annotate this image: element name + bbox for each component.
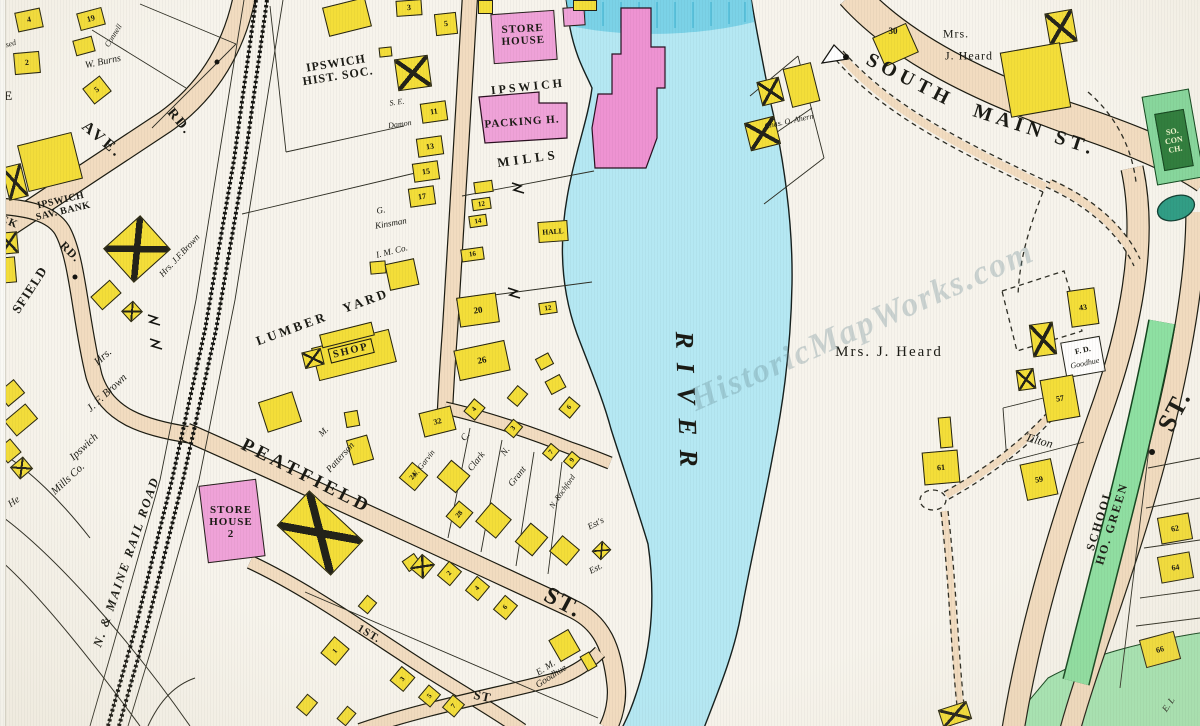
building-number: 43	[1078, 303, 1087, 312]
map-building: HALL	[537, 220, 568, 243]
building-number: 3	[407, 4, 412, 12]
building-number: 15	[421, 167, 430, 176]
map-building: 13	[416, 135, 444, 157]
building-number: 7	[547, 448, 555, 455]
map-building	[1060, 336, 1106, 378]
map-building: 64	[1157, 551, 1194, 583]
map-building	[1044, 9, 1077, 46]
building-number: HALL	[542, 227, 564, 236]
building-number: 62	[1170, 524, 1179, 533]
map-building	[379, 46, 393, 57]
map-building: 11	[420, 100, 449, 123]
map-building: 2	[13, 51, 41, 75]
building-number: 28	[455, 510, 465, 520]
building-number: 5	[444, 20, 449, 28]
map-building	[344, 410, 361, 428]
building-number: 17	[417, 192, 426, 201]
map-building: 62	[1157, 512, 1193, 544]
building-number: 2	[446, 570, 454, 577]
building-number: 5	[93, 86, 101, 95]
building-number: 12	[478, 200, 486, 208]
owner-label-heard: Mrs.	[943, 27, 969, 40]
building-number: 9	[568, 456, 576, 463]
building-number: 2	[25, 59, 30, 67]
building-number: 26	[477, 355, 488, 366]
map-building: 57	[1040, 374, 1081, 422]
building-number: 4	[471, 406, 479, 413]
building-number: 6	[502, 604, 510, 611]
building-number: 11	[430, 108, 439, 117]
building-number: 1	[331, 647, 339, 654]
building-number: 61	[937, 463, 946, 472]
map-building	[1016, 368, 1037, 391]
map-building: 61	[922, 449, 961, 485]
building-number: 20	[473, 305, 483, 315]
building-number: 64	[1171, 563, 1180, 572]
building-number: 4	[26, 16, 32, 25]
map-building: 15	[412, 160, 440, 182]
building-number: 19	[86, 14, 96, 24]
map-building	[478, 0, 493, 14]
historic-map-ipswich: 419253511131517121416HALL202612463793224…	[0, 0, 1200, 726]
map-building	[573, 0, 597, 11]
place-label-store-house-2: STORE HOUSE 2	[209, 504, 253, 540]
map-building	[369, 260, 386, 274]
building-number: 57	[1055, 394, 1064, 403]
map-building	[938, 416, 954, 448]
map-building: 20	[456, 292, 500, 327]
owner-label-heard: J. Heard	[945, 49, 993, 62]
building-number: 59	[1034, 475, 1043, 484]
building-number: 7	[450, 702, 458, 709]
building-number: 6	[566, 404, 574, 411]
map-building: 12	[538, 301, 557, 315]
scan-edge	[0, 0, 6, 726]
map-building	[1029, 321, 1057, 357]
building-number: 14	[474, 217, 482, 225]
map-building: 43	[1067, 287, 1100, 328]
building-number: 4	[474, 585, 482, 592]
map-building: 17	[408, 185, 436, 207]
building-number: 16	[469, 251, 477, 259]
building-number: 3	[399, 675, 407, 682]
building-number: 32	[433, 417, 443, 427]
map-building: 5	[434, 12, 458, 36]
map-building: 3	[395, 0, 422, 17]
building-number: 66	[1155, 645, 1165, 655]
map-building	[1000, 42, 1072, 118]
owner-label: G.	[376, 205, 386, 216]
building-number: 12	[544, 304, 552, 312]
house-number: 30	[889, 27, 898, 37]
building-number: 13	[425, 142, 434, 151]
building-number: 3	[510, 425, 518, 432]
map-building: 14	[468, 214, 487, 228]
place-label-store-house: STORE HOUSE	[501, 22, 546, 48]
map-building	[394, 55, 432, 91]
building-number: 5	[426, 692, 434, 699]
